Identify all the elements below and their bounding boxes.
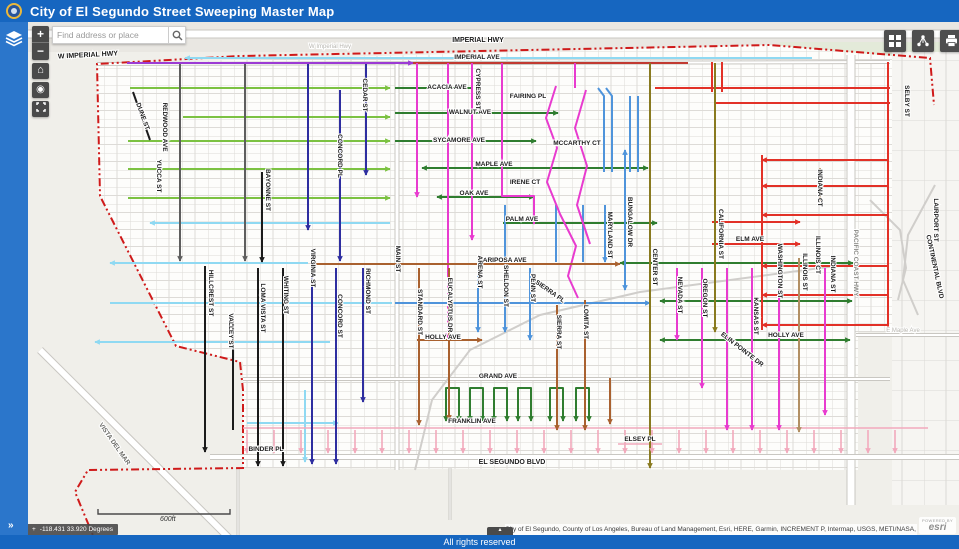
coordinates-readout: -118.431 33.920 Degrees [40,524,113,535]
street-label: HOLLY AVE [425,334,461,341]
layers-icon[interactable] [5,30,23,47]
printer-icon [945,35,958,47]
city-seal-logo [6,3,22,19]
extent-icon [36,102,46,112]
locate-button[interactable]: ◉ [32,82,49,98]
street-label: VIRGINIA ST [309,249,316,288]
scale-label: 600ft [160,516,176,523]
street-label: E Maple Ave [886,328,920,334]
street-label: STANDARD ST [416,289,423,335]
street-label: LAIRPORT ST [932,198,939,241]
street-label: MAIN ST [394,246,401,273]
page-title: City of El Segundo Street Sweeping Maste… [30,4,334,19]
street-label: CONCORD PL [336,134,343,178]
street-label: BAYONNE ST [264,169,271,211]
street-label: EUCALYPTUS DR [446,278,453,333]
grid-icon [889,35,901,47]
street-label: WASHINGTON ST [776,244,783,299]
street-label: HOLLY AVE [768,332,804,339]
street-label: ILLINOIS ST [801,253,808,291]
street-label: SYCAMORE AVE [433,137,486,144]
map-canvas[interactable]: W IMPERIAL HWYIMPERIAL HWYIMPERIAL AVEAC… [0,0,959,549]
street-label: MARIPOSA AVE [477,257,527,264]
search-input[interactable] [52,26,168,44]
street-label: INDIANA CT [816,169,823,206]
street-label: PACIFIC COAST HWY [852,229,859,297]
street-label: INDIANA ST [829,256,836,293]
street-label: CONCORD ST [336,294,343,338]
street-label: W Imperial Hwy [309,44,351,50]
street-label: CENTER ST [651,249,658,286]
street-label: IMPERIAL HWY [452,37,504,44]
street-label: BUNGALOW DR [626,197,633,247]
street-label: RICHMOND ST [364,268,371,314]
street-label: PALM AVE [506,216,539,223]
street-label: MAPLE AVE [475,161,513,168]
street-label: ELM AVE [736,236,765,243]
street-label: KANSAS ST [752,297,759,335]
street-label: LOMA VISTA ST [259,283,266,332]
rights-bar: All rights reserved [0,535,959,549]
street-label: ARENA ST [476,256,483,289]
street-label: VALLEY ST [227,313,234,348]
street-label: WALNUT AVE [449,109,492,116]
street-label: SIERRA ST [555,315,562,349]
street-label: GRAND AVE [479,373,518,380]
street-label: OAK AVE [460,190,490,197]
street-label: FAIRING PL [510,93,547,100]
search-button[interactable] [168,26,186,44]
street-label: MARYLAND ST [606,211,613,258]
sidebar: » [0,22,28,535]
street-label: SHELDON ST [502,265,509,307]
street-label: NEVADA ST [676,277,683,314]
search-widget [52,26,186,44]
map-attribution: City of El Segundo, County of Los Angele… [505,524,917,535]
street-label: MCCARTHY CT [553,140,601,147]
app-header: City of El Segundo Street Sweeping Maste… [0,0,959,22]
street-label: WHITING ST [282,276,289,314]
street-label: CYPRESS ST [474,68,481,109]
basemap-gallery-button[interactable] [884,30,906,52]
street-label: HILLCREST ST [207,270,214,317]
street-label: REDWOOD AVE [161,102,168,152]
street-label: IRENE CT [510,179,540,186]
street-label: SELBY ST [903,85,910,117]
street-label: CALIFORNIA ST [717,209,724,259]
east-industrial-area [892,52,959,505]
street-label: CEDAR ST [361,78,368,111]
street-label: PENN ST [529,274,536,302]
app-window: W IMPERIAL HWYIMPERIAL HWYIMPERIAL AVEAC… [0,0,959,549]
street-label: IMPERIAL AVE [454,54,500,61]
home-button[interactable]: ⌂ [32,63,49,79]
share-button[interactable] [912,30,934,52]
sidebar-collapse-button[interactable]: » [8,520,14,531]
zoom-control: + − [32,26,49,60]
attribution-expand-button[interactable]: ▴ [487,527,513,535]
print-button[interactable] [940,30,959,52]
street-label: ACACIA AVE [427,84,467,91]
street-label: ELSEY PL [624,436,655,443]
scale-bar [97,508,237,516]
street-label: EL SEGUNDO BLVD [479,459,546,466]
esri-wordmark: esri [919,523,956,533]
street-label: FRANKLIN AVE [448,418,496,425]
esri-logo: POWERED BY esri [919,517,956,534]
extent-button[interactable] [32,101,49,117]
zoom-in-button[interactable]: + [32,26,49,43]
search-icon [172,30,183,41]
street-label: OREGON ST [701,278,708,317]
zoom-out-button[interactable]: − [32,43,49,60]
street-label: ILLINOIS CT [814,236,821,274]
coordinates-widget[interactable]: + -118.431 33.920 Degrees [27,524,118,535]
street-label: BINDER PL [248,446,283,453]
street-label: YUCCA ST [155,160,162,193]
crosshair-icon: + [32,524,36,535]
street-label: LOMITA ST [582,305,589,339]
share-icon [917,35,929,47]
